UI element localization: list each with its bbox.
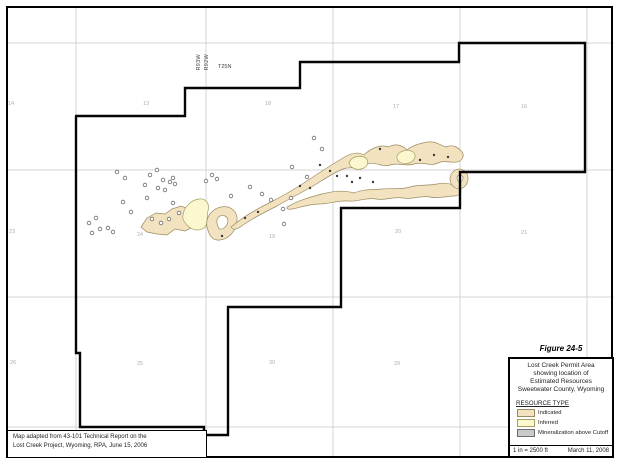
drill-hole-marker bbox=[156, 186, 160, 190]
drill-hole-marker bbox=[260, 192, 264, 196]
source-note: Map adapted from 43-101 Technical Report… bbox=[7, 430, 207, 458]
drill-hole-marker bbox=[145, 196, 149, 200]
cutoff-swatch bbox=[517, 429, 535, 437]
drill-hole-marker bbox=[305, 175, 309, 179]
figure-title-line-3: Estimated Resources bbox=[510, 378, 612, 386]
drill-hole-marker bbox=[98, 227, 102, 231]
drill-hole-marker bbox=[171, 201, 175, 205]
intercept-dot bbox=[433, 154, 435, 156]
drill-hole-marker bbox=[94, 216, 98, 220]
drill-hole-marker bbox=[248, 185, 252, 189]
drill-hole-marker bbox=[204, 179, 208, 183]
drill-hole-marker bbox=[115, 170, 119, 174]
drill-hole-marker bbox=[210, 173, 214, 177]
intercept-dot bbox=[329, 170, 331, 172]
indicated-label: Indicated bbox=[538, 410, 562, 416]
drill-hole-marker bbox=[155, 168, 159, 172]
drill-hole-marker bbox=[106, 226, 110, 230]
drill-hole-marker bbox=[163, 188, 167, 192]
figure-24-5-map: 1413181716232419202126253029 R93W R92W T… bbox=[0, 0, 621, 465]
section-number: 18 bbox=[265, 101, 271, 107]
indicated-swatch bbox=[517, 409, 535, 417]
drill-hole-marker bbox=[159, 221, 163, 225]
ore-body-inferred-inferred-sliver-east bbox=[397, 150, 415, 163]
legend-item-cutoff: Mineralization above Cutoff bbox=[517, 429, 612, 437]
drill-hole-marker bbox=[177, 211, 181, 215]
ore-body-indicated-main-trend-south bbox=[287, 183, 461, 209]
legend-box: Lost Creek Permit Area showing location … bbox=[508, 357, 614, 458]
intercept-dot bbox=[257, 211, 259, 213]
section-number: 23 bbox=[9, 229, 15, 235]
drill-hole-marker bbox=[150, 217, 154, 221]
section-number: 25 bbox=[137, 361, 143, 367]
intercept-dot bbox=[419, 159, 421, 161]
drill-hole-marker bbox=[168, 180, 172, 184]
drill-hole-marker bbox=[111, 230, 115, 234]
drill-hole-marker bbox=[229, 194, 233, 198]
drill-hole-marker bbox=[123, 176, 127, 180]
source-note-line-2: Lost Creek Project, Wyoming, RPA, June 1… bbox=[13, 442, 206, 451]
intercept-dot bbox=[351, 181, 353, 183]
inferred-label: Inferred bbox=[538, 420, 558, 426]
drill-hole-marker bbox=[121, 200, 125, 204]
intercept-dot bbox=[319, 164, 321, 166]
date-text: March 11, 2008 bbox=[568, 448, 609, 454]
drill-hole-marker bbox=[171, 176, 175, 180]
drill-hole-marker bbox=[148, 173, 152, 177]
intercept-dot bbox=[372, 181, 374, 183]
drill-hole-marker bbox=[269, 198, 273, 202]
intercept-dot bbox=[336, 175, 338, 177]
section-number: 20 bbox=[395, 229, 401, 235]
drill-hole-marker bbox=[90, 231, 94, 235]
legend-item-inferred: Inferred bbox=[517, 419, 612, 427]
section-number: 29 bbox=[394, 361, 400, 367]
range-label-r93w: R93W bbox=[196, 54, 202, 70]
section-number: 21 bbox=[521, 230, 527, 236]
drill-hole-marker bbox=[290, 165, 294, 169]
intercept-dot bbox=[379, 148, 381, 150]
intercept-dot bbox=[221, 235, 223, 237]
drill-hole-marker bbox=[87, 221, 91, 225]
drill-hole-marker bbox=[320, 147, 324, 151]
figure-title-line-4: Sweetwater County, Wyoming bbox=[510, 386, 612, 394]
section-number: 26 bbox=[10, 360, 16, 366]
section-number: 24 bbox=[137, 232, 143, 238]
section-number: 17 bbox=[393, 104, 399, 110]
drill-hole-marker bbox=[289, 196, 293, 200]
figure-title-line-2: showing location of bbox=[510, 370, 612, 378]
scale-text: 1 in = 2500 ft bbox=[513, 448, 548, 454]
drill-hole-marker bbox=[167, 217, 171, 221]
range-label-r92w: R92W bbox=[204, 54, 210, 70]
intercept-dot bbox=[346, 175, 348, 177]
intercept-dot bbox=[359, 177, 361, 179]
intercept-dot bbox=[244, 217, 246, 219]
section-number: 16 bbox=[521, 104, 527, 110]
drill-hole-marker bbox=[281, 207, 285, 211]
legend-item-indicated: Indicated bbox=[517, 409, 612, 417]
drill-hole-marker bbox=[161, 178, 165, 182]
section-number: 13 bbox=[143, 101, 149, 107]
drill-hole-marker bbox=[143, 183, 147, 187]
drill-hole-marker bbox=[129, 210, 133, 214]
figure-title-line-1: Lost Creek Permit Area bbox=[510, 362, 612, 370]
section-number: 14 bbox=[8, 101, 14, 107]
section-number: 30 bbox=[269, 360, 275, 366]
section-number: 19 bbox=[269, 234, 275, 240]
figure-label: Figure 24-5 bbox=[508, 344, 614, 353]
cutoff-label: Mineralization above Cutoff bbox=[538, 430, 608, 436]
intercept-dot bbox=[309, 187, 311, 189]
source-note-line-1: Map adapted from 43-101 Technical Report… bbox=[13, 433, 206, 442]
drill-hole-marker bbox=[215, 177, 219, 181]
drill-hole-marker bbox=[173, 182, 177, 186]
drill-hole-marker bbox=[282, 222, 286, 226]
legend-heading: RESOURCE TYPE bbox=[516, 400, 612, 407]
drill-hole-marker bbox=[312, 136, 316, 140]
township-label: T25N bbox=[218, 64, 231, 70]
intercept-dot bbox=[447, 156, 449, 158]
inferred-swatch bbox=[517, 419, 535, 427]
intercept-dot bbox=[299, 185, 301, 187]
legend-footer: 1 in = 2500 ft March 11, 2008 bbox=[510, 445, 612, 456]
